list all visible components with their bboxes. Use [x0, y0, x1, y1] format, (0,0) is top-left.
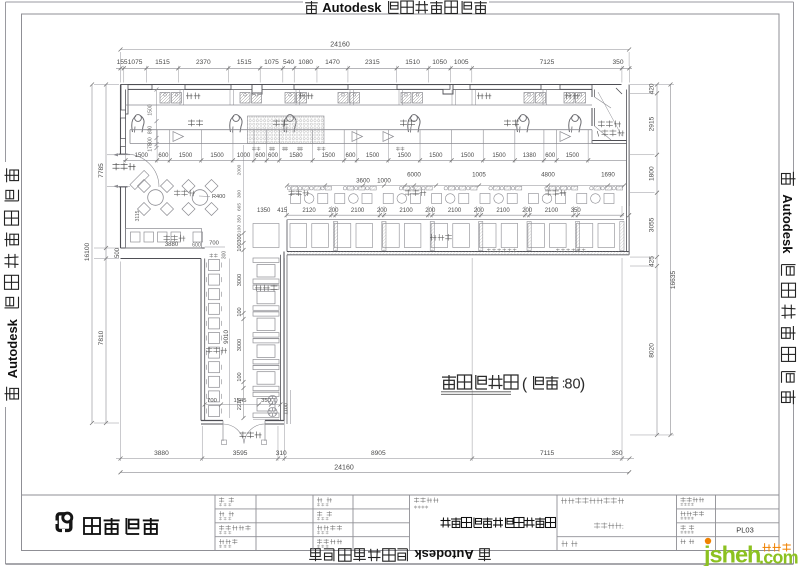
svg-text:100: 100	[237, 242, 243, 251]
svg-text:1690: 1690	[601, 172, 615, 179]
svg-text:3880: 3880	[154, 450, 169, 457]
svg-text:3880: 3880	[165, 242, 179, 248]
svg-text:425: 425	[649, 256, 656, 267]
svg-text:4800: 4800	[541, 172, 555, 179]
svg-text:350: 350	[571, 208, 582, 214]
svg-text:7115: 7115	[540, 450, 555, 457]
svg-text::: :	[622, 524, 624, 531]
svg-text:600: 600	[192, 243, 201, 249]
svg-text:6000: 6000	[407, 172, 421, 179]
svg-text:155: 155	[117, 59, 128, 66]
svg-text:1005: 1005	[472, 172, 486, 179]
svg-text:9010: 9010	[223, 330, 230, 344]
svg-text:3600: 3600	[356, 178, 370, 185]
svg-text:1800: 1800	[649, 166, 656, 181]
svg-text:1500: 1500	[366, 153, 380, 159]
svg-text:1500: 1500	[492, 153, 506, 159]
svg-text:200: 200	[425, 208, 436, 214]
svg-text:3000: 3000	[237, 274, 243, 286]
svg-text:3595: 3595	[233, 450, 248, 457]
svg-text:2100: 2100	[496, 208, 510, 214]
svg-text:1380: 1380	[523, 153, 537, 159]
svg-text:665: 665	[237, 203, 243, 211]
svg-text:600: 600	[255, 153, 266, 159]
svg-text:310: 310	[276, 450, 287, 457]
svg-text:1580: 1580	[289, 153, 303, 159]
svg-text:.com: .com	[759, 548, 798, 567]
svg-text:540: 540	[283, 59, 294, 66]
svg-text:1500: 1500	[429, 153, 443, 159]
svg-text:200: 200	[522, 208, 533, 214]
svg-text:7785: 7785	[98, 163, 105, 178]
svg-text:200: 200	[328, 208, 339, 214]
svg-text:1515: 1515	[155, 59, 170, 66]
svg-text:): )	[580, 376, 585, 393]
svg-text:1000: 1000	[377, 178, 391, 185]
svg-text:1500: 1500	[322, 153, 336, 159]
svg-text:PL03: PL03	[736, 526, 754, 535]
svg-text:420: 420	[649, 83, 656, 94]
svg-text:Autodesk: Autodesk	[414, 547, 474, 562]
svg-text:1080: 1080	[298, 59, 313, 66]
svg-text:1500: 1500	[179, 153, 193, 159]
svg-text:80: 80	[564, 377, 580, 393]
svg-text:3000: 3000	[237, 339, 243, 351]
svg-text:7125: 7125	[540, 59, 555, 66]
svg-text:1005: 1005	[454, 59, 469, 66]
svg-text:1500: 1500	[398, 153, 412, 159]
svg-text:1000: 1000	[237, 153, 251, 159]
svg-text:2100: 2100	[351, 208, 365, 214]
svg-text:2100: 2100	[399, 208, 413, 214]
svg-text:1515: 1515	[237, 59, 252, 66]
svg-text:1470: 1470	[325, 59, 340, 66]
svg-text:415: 415	[277, 208, 288, 214]
svg-text:1050: 1050	[432, 59, 447, 66]
svg-text:Autodesk: Autodesk	[780, 194, 795, 254]
svg-text:3115: 3115	[135, 210, 141, 221]
svg-text:600: 600	[158, 153, 169, 159]
svg-text:200: 200	[377, 208, 388, 214]
svg-text:800: 800	[148, 126, 154, 135]
svg-text:16100: 16100	[84, 243, 91, 262]
svg-text:1500: 1500	[148, 104, 154, 115]
svg-text:1350: 1350	[257, 208, 271, 214]
svg-text:1075: 1075	[264, 59, 279, 66]
svg-text:8020: 8020	[649, 343, 656, 358]
svg-text:2000: 2000	[237, 164, 243, 175]
svg-text:16635: 16635	[670, 271, 677, 290]
svg-text:2915: 2915	[649, 116, 656, 131]
svg-text:350: 350	[612, 59, 623, 66]
svg-text:Autodesk: Autodesk	[5, 318, 20, 378]
svg-text:1500: 1500	[135, 153, 149, 159]
svg-text:2100: 2100	[545, 208, 559, 214]
svg-text:R400: R400	[212, 194, 225, 200]
svg-text:300: 300	[237, 190, 243, 198]
svg-text:1500: 1500	[566, 153, 580, 159]
svg-text:700: 700	[207, 398, 217, 404]
svg-text:350: 350	[237, 215, 243, 223]
svg-text:1545: 1545	[234, 398, 247, 404]
svg-text:Autodesk: Autodesk	[322, 0, 382, 15]
svg-text:24160: 24160	[330, 42, 350, 49]
svg-text:1510: 1510	[405, 59, 420, 66]
svg-text:2370: 2370	[196, 59, 211, 66]
svg-text:700: 700	[209, 241, 219, 247]
svg-text:1500: 1500	[461, 153, 475, 159]
svg-text:2120: 2120	[302, 208, 316, 214]
svg-text:175: 175	[148, 143, 154, 152]
svg-text:200: 200	[474, 208, 485, 214]
svg-text:2315: 2315	[365, 59, 380, 66]
svg-text:3055: 3055	[649, 217, 656, 232]
svg-text:600: 600	[345, 153, 356, 159]
svg-text:100: 100	[237, 372, 243, 381]
svg-text:300: 300	[222, 251, 228, 260]
svg-text:\: \	[597, 132, 599, 139]
svg-text:100: 100	[237, 225, 243, 233]
svg-text:350: 350	[611, 450, 622, 457]
svg-text:8905: 8905	[371, 450, 386, 457]
svg-text:(: (	[522, 376, 528, 393]
svg-text:7810: 7810	[98, 330, 105, 345]
svg-text:2100: 2100	[448, 208, 462, 214]
svg-text:600: 600	[268, 153, 279, 159]
svg-text:600: 600	[545, 153, 556, 159]
svg-text:1075: 1075	[128, 59, 143, 66]
svg-text:jsheh: jsheh	[703, 542, 760, 567]
svg-text:100: 100	[237, 307, 243, 316]
svg-text:1500: 1500	[210, 153, 224, 159]
svg-text:24160: 24160	[334, 464, 354, 471]
svg-text:500: 500	[115, 247, 121, 258]
